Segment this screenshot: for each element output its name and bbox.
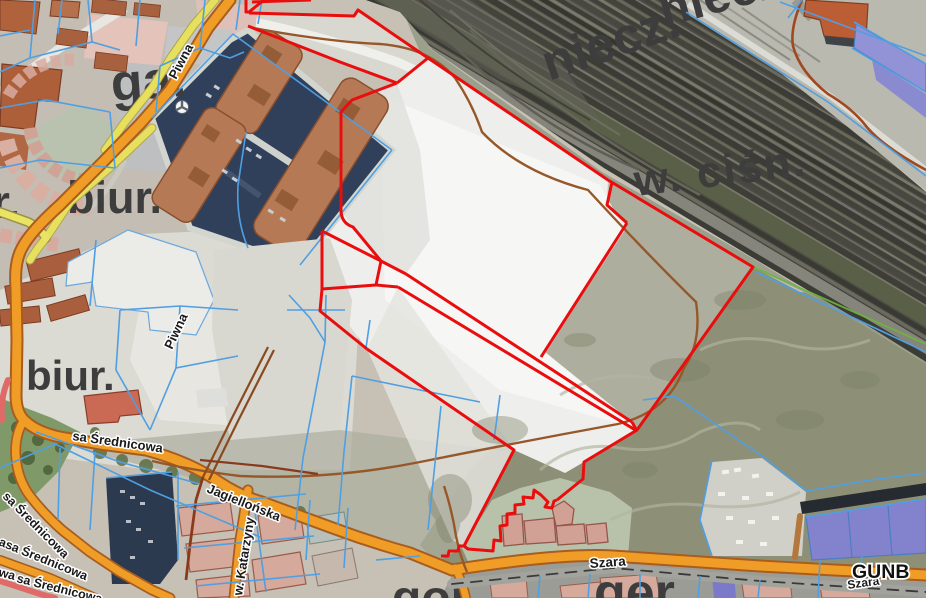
svg-text:GUNB: GUNB (852, 561, 909, 583)
svg-text:Szara: Szara (589, 553, 626, 571)
svg-text:biur.: biur. (26, 352, 115, 399)
